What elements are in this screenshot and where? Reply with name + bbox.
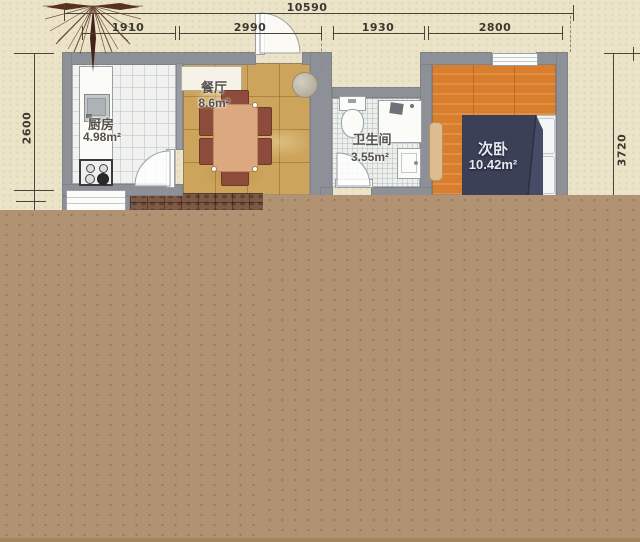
dim-tick	[321, 26, 322, 40]
table-corner-dot	[253, 103, 257, 107]
dim-seg3-label: 1930	[362, 21, 395, 34]
dining-label: 餐厅	[201, 77, 227, 96]
dim-seg1-label: 1910	[112, 21, 145, 34]
bedroom-label: 次卧	[478, 138, 508, 159]
bedroom-area: 10.42m²	[469, 157, 517, 172]
dim-total-tick-right	[573, 5, 574, 21]
pillow-icon	[537, 118, 555, 154]
round-stool	[292, 72, 318, 98]
dim-left-label: 2600	[21, 112, 34, 145]
kitchen-area: 4.98m²	[83, 130, 121, 144]
kitchen-door-leaf	[166, 149, 175, 188]
dim-total-tick-left	[64, 5, 65, 21]
wall-top-west	[62, 52, 256, 65]
floor-plan-canvas: 10590 1910 2990 1930 2800 2600 3720	[0, 0, 640, 542]
dining-area: 8.6m²	[198, 96, 229, 110]
stove-icon	[79, 159, 113, 186]
dim-right-tick	[633, 47, 634, 61]
dim-left-tick-bottom	[14, 190, 54, 191]
dining-table	[213, 104, 258, 172]
dim-projection-dash	[570, 16, 571, 52]
entrance-door-leaf	[255, 13, 265, 55]
dim-seg2-label: 2990	[234, 21, 267, 34]
table-corner-dot	[253, 167, 257, 171]
wall-dining-right	[310, 52, 332, 196]
dining-chair	[221, 170, 249, 186]
dim-tick	[428, 26, 429, 40]
dim-left-line	[34, 53, 35, 211]
dining-chair	[257, 107, 272, 136]
washbasin-icon	[397, 148, 421, 179]
bedroom-window	[492, 53, 538, 66]
dining-chair	[199, 107, 214, 136]
image-cutoff-overlay-right	[263, 195, 640, 542]
dim-right-tick-top	[604, 53, 640, 54]
dim-tick	[175, 26, 176, 40]
dim-right-line	[613, 53, 614, 195]
bathroom-label: 卫生间	[352, 129, 391, 148]
dim-total-label: 10590	[287, 1, 328, 14]
dim-tick	[179, 26, 180, 40]
image-cutoff-bottom-strip	[0, 538, 640, 542]
bedroom-door-leaf	[429, 122, 443, 181]
dim-tick	[562, 26, 563, 40]
dining-chair	[257, 138, 272, 165]
dining-chair	[199, 138, 214, 165]
dim-tick	[333, 26, 334, 40]
dim-seg4-label: 2800	[479, 21, 512, 34]
wall-bedroom-right	[556, 52, 568, 196]
dim-left-tick-extra	[16, 201, 46, 202]
dim-tick	[424, 26, 425, 40]
wall-bedroom-top-left	[420, 52, 492, 65]
dim-right-label: 3720	[616, 134, 629, 167]
wall-left	[62, 52, 72, 196]
bathroom-door-leaf	[335, 179, 373, 188]
dim-tick	[82, 26, 83, 40]
table-corner-dot	[212, 167, 216, 171]
pillow-icon	[537, 156, 555, 194]
bathroom-area: 3.55m²	[351, 150, 389, 164]
image-cutoff-overlay-left	[0, 210, 263, 542]
